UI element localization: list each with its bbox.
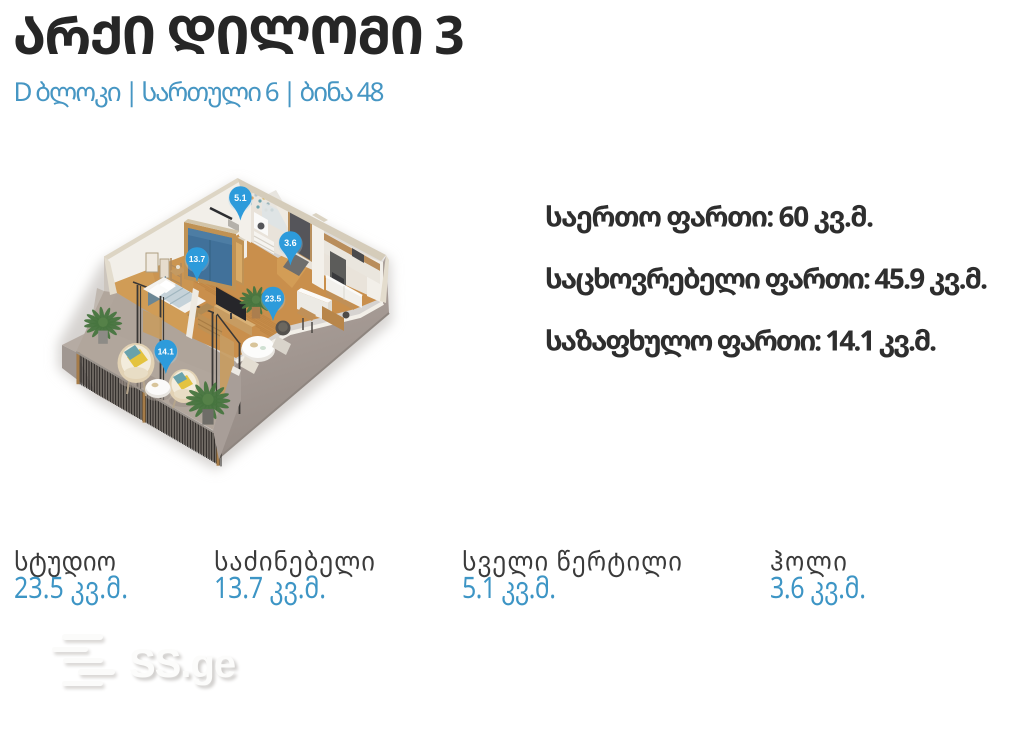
svg-text:14.1: 14.1: [158, 346, 175, 356]
svg-text:5.1: 5.1: [234, 193, 247, 203]
svg-text:23.5: 23.5: [265, 293, 282, 303]
svg-text:3.6: 3.6: [284, 238, 297, 248]
svg-text:13.7: 13.7: [189, 254, 206, 264]
